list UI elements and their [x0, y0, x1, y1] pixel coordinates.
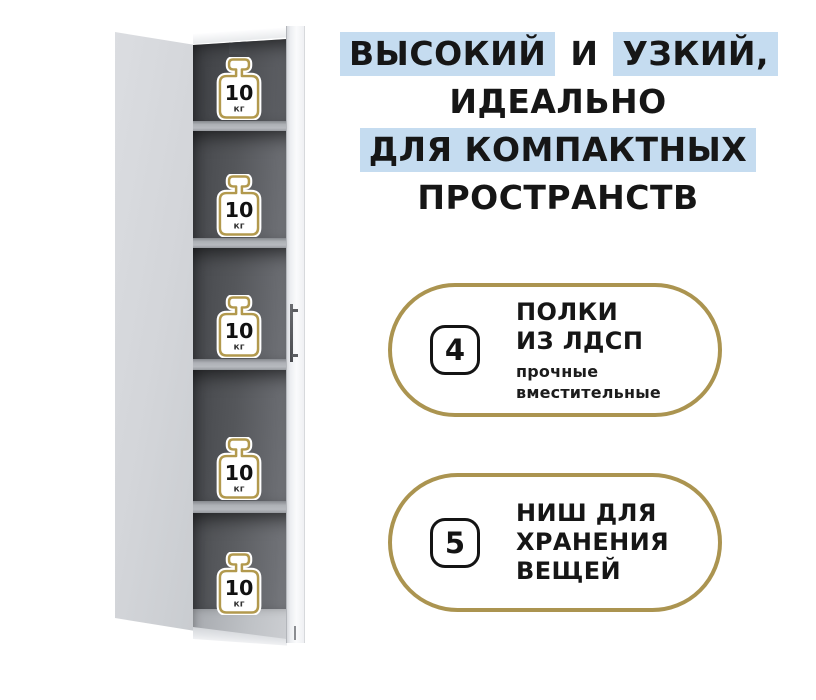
headline-text: И: [567, 32, 601, 76]
feature-text: НИШ ДЛЯ ХРАНЕНИЯ ВЕЩЕЙ: [516, 499, 669, 586]
headline: ВЫСОКИЙ И УЗКИЙ, ИДЕАЛЬНО ДЛЯ КОМПАКТНЫХ…: [340, 32, 776, 224]
headline-line-1: ВЫСОКИЙ И УЗКИЙ,: [340, 32, 776, 76]
cabinet-render: 10 кг 10 кг: [113, 26, 307, 666]
headline-text: ИДЕАЛЬНО: [446, 80, 669, 124]
cabinet-shelf: [193, 238, 287, 248]
weight-unit: кг: [234, 105, 245, 115]
weight-10kg-icon: 10 кг: [214, 552, 264, 615]
weight-value: 10: [225, 461, 254, 485]
weight-unit: кг: [234, 485, 245, 495]
cabinet-side-panel: [115, 32, 193, 631]
feature-subtitle: прочные вместительные: [516, 361, 661, 403]
feature-title-line: ХРАНЕНИЯ: [516, 528, 669, 557]
feature-title-line: ИЗ ЛДСП: [516, 327, 661, 356]
cabinet-compartment: 10 кг: [193, 370, 287, 501]
headline-highlight: ДЛЯ КОМПАКТНЫХ: [360, 128, 756, 172]
weight-10kg-icon: 10 кг: [214, 437, 264, 500]
feature-title-line: ВЕЩЕЙ: [516, 557, 669, 586]
weight-10kg-icon: 10 кг: [214, 57, 264, 120]
feature-title-line: ПОЛКИ: [516, 298, 661, 327]
product-infographic: 10 кг 10 кг: [0, 0, 816, 700]
weight-unit: кг: [234, 222, 245, 232]
weight-unit: кг: [234, 343, 245, 353]
cabinet-compartment: 10 кг: [193, 513, 287, 609]
cabinet-compartment: 10 кг: [193, 39, 287, 121]
weight-value: 10: [225, 576, 254, 600]
cabinet-compartment: 10 кг: [193, 131, 287, 238]
feature-subtitle-line: прочные: [516, 361, 661, 382]
weight-10kg-icon: 10 кг: [214, 174, 264, 237]
weight-value: 10: [225, 319, 254, 343]
cabinet-compartment: 10 кг: [193, 248, 287, 359]
headline-highlight: ВЫСОКИЙ: [340, 32, 555, 76]
weight-10kg-icon: 10 кг: [214, 295, 264, 358]
headline-line-3: ДЛЯ КОМПАКТНЫХ: [340, 128, 776, 172]
cabinet-shelf: [193, 359, 287, 370]
door-handle: [290, 304, 293, 362]
feature-badge-niches: 5 НИШ ДЛЯ ХРАНЕНИЯ ВЕЩЕЙ: [388, 473, 722, 612]
cabinet-interior: 10 кг 10 кг: [193, 39, 287, 639]
feature-title-line: НИШ ДЛЯ: [516, 499, 669, 528]
door-hinge: [294, 626, 296, 640]
feature-count-box: 5: [430, 518, 480, 568]
headline-line-4: ПРОСТРАНСТВ: [340, 176, 776, 220]
weight-value: 10: [225, 81, 254, 105]
hinge-plate: [229, 41, 246, 54]
weight-unit: кг: [234, 600, 245, 610]
cabinet-door: [286, 26, 305, 643]
cabinet-shelf: [193, 501, 287, 513]
feature-count-box: 4: [430, 325, 480, 375]
headline-line-2: ИДЕАЛЬНО: [340, 80, 776, 124]
feature-text: ПОЛКИ ИЗ ЛДСП прочные вместительные: [516, 298, 661, 403]
headline-text: ПРОСТРАНСТВ: [414, 176, 701, 220]
headline-highlight: УЗКИЙ,: [613, 32, 778, 76]
feature-badge-shelves: 4 ПОЛКИ ИЗ ЛДСП прочные вместительные: [388, 283, 722, 417]
feature-subtitle-line: вместительные: [516, 382, 661, 403]
weight-value: 10: [225, 198, 254, 222]
cabinet-shelf: [193, 121, 287, 131]
